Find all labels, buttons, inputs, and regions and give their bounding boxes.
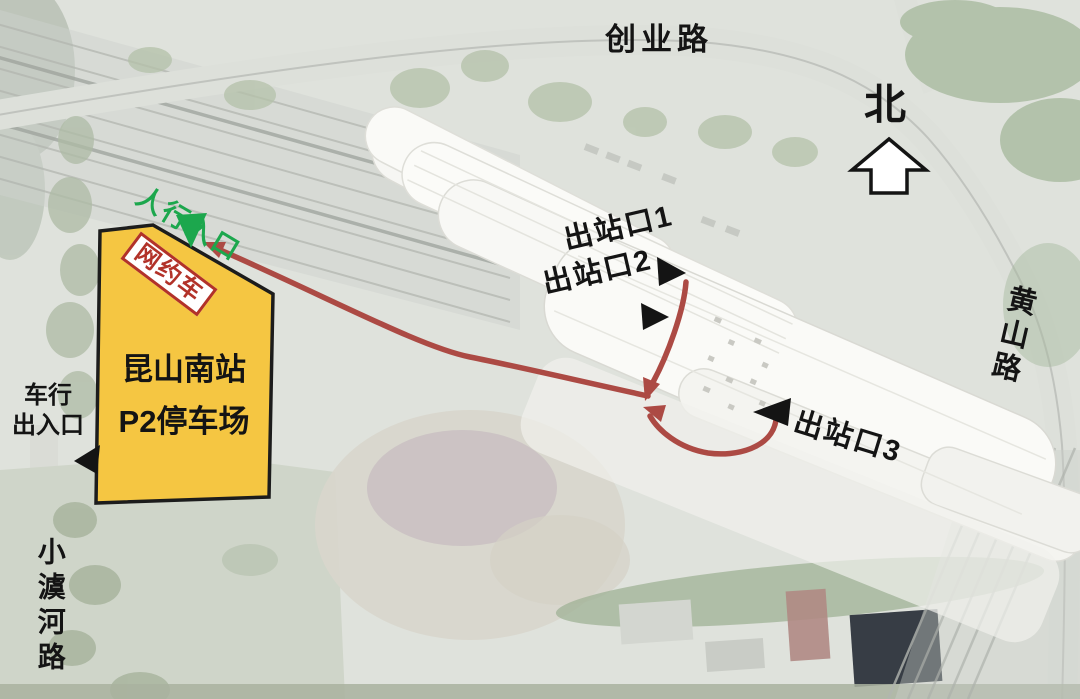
road-label-xiaoyuhe: 小澞河路 — [34, 537, 65, 677]
parking-name-line1: 昆山南站 — [100, 353, 268, 387]
north-label: 北 — [864, 82, 906, 128]
satellite-map-canvas — [0, 0, 1080, 699]
parking-name-line2: P2停车场 — [100, 405, 268, 439]
station-guide-map: 创业路 北 人行入口 网约车 昆山南站 P2停车场 车行 出入口 小澞河路 黄山… — [0, 0, 1080, 699]
road-label-chuangye: 创业路 — [605, 23, 713, 57]
vehicle-entrance-line1: 车行 — [2, 381, 94, 411]
building-red-roof — [786, 589, 831, 662]
vehicle-entrance-label: 车行 出入口 — [2, 381, 94, 441]
vehicle-entrance-line2: 出入口 — [2, 411, 94, 441]
